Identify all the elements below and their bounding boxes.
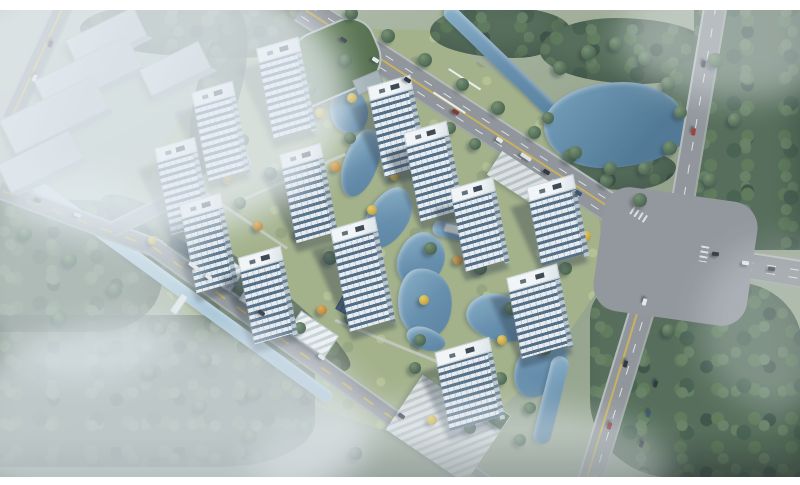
tree	[661, 77, 675, 91]
tree	[347, 93, 357, 103]
tree	[524, 402, 536, 414]
tree	[367, 205, 377, 215]
tree	[315, 108, 325, 118]
tree	[63, 253, 77, 267]
tree	[569, 146, 582, 159]
tree	[418, 53, 432, 67]
tree	[604, 162, 617, 175]
tree	[19, 227, 32, 240]
white-margin-bottom	[0, 477, 800, 485]
tree	[244, 430, 257, 443]
tree	[728, 113, 742, 127]
tree	[234, 197, 246, 209]
tree	[194, 400, 207, 413]
tree	[154, 322, 167, 335]
tree	[663, 141, 677, 155]
tree	[638, 51, 653, 66]
tree	[299, 420, 312, 433]
tree	[198, 353, 212, 367]
tree	[148, 236, 157, 245]
tree	[581, 45, 596, 60]
tree	[330, 161, 341, 172]
tree	[469, 138, 481, 150]
tree	[708, 53, 723, 68]
tree	[53, 311, 67, 325]
tree	[108, 283, 122, 297]
tree	[600, 174, 613, 187]
tree	[514, 434, 526, 446]
tree	[414, 334, 426, 346]
tree	[344, 132, 356, 144]
tree	[317, 305, 327, 315]
tree	[419, 295, 429, 305]
tree	[638, 162, 651, 175]
tree	[703, 173, 717, 187]
tree	[674, 106, 687, 119]
tree	[99, 342, 112, 355]
tree	[633, 193, 647, 207]
tree	[427, 415, 437, 425]
tree	[497, 335, 507, 345]
tree	[528, 126, 541, 139]
tree	[253, 221, 263, 231]
tree	[143, 366, 157, 380]
tree	[456, 78, 469, 91]
tree	[491, 101, 505, 115]
tree	[349, 447, 362, 460]
tree	[340, 54, 352, 66]
rendering-frame	[0, 0, 800, 485]
tree	[381, 29, 395, 43]
tree	[609, 37, 623, 51]
tree	[424, 242, 437, 255]
white-margin-top	[0, 0, 800, 10]
tree	[553, 61, 567, 75]
scene	[0, 0, 800, 485]
main-intersection	[590, 184, 761, 329]
tree	[662, 324, 675, 337]
tree	[542, 112, 554, 124]
tree	[248, 386, 262, 400]
